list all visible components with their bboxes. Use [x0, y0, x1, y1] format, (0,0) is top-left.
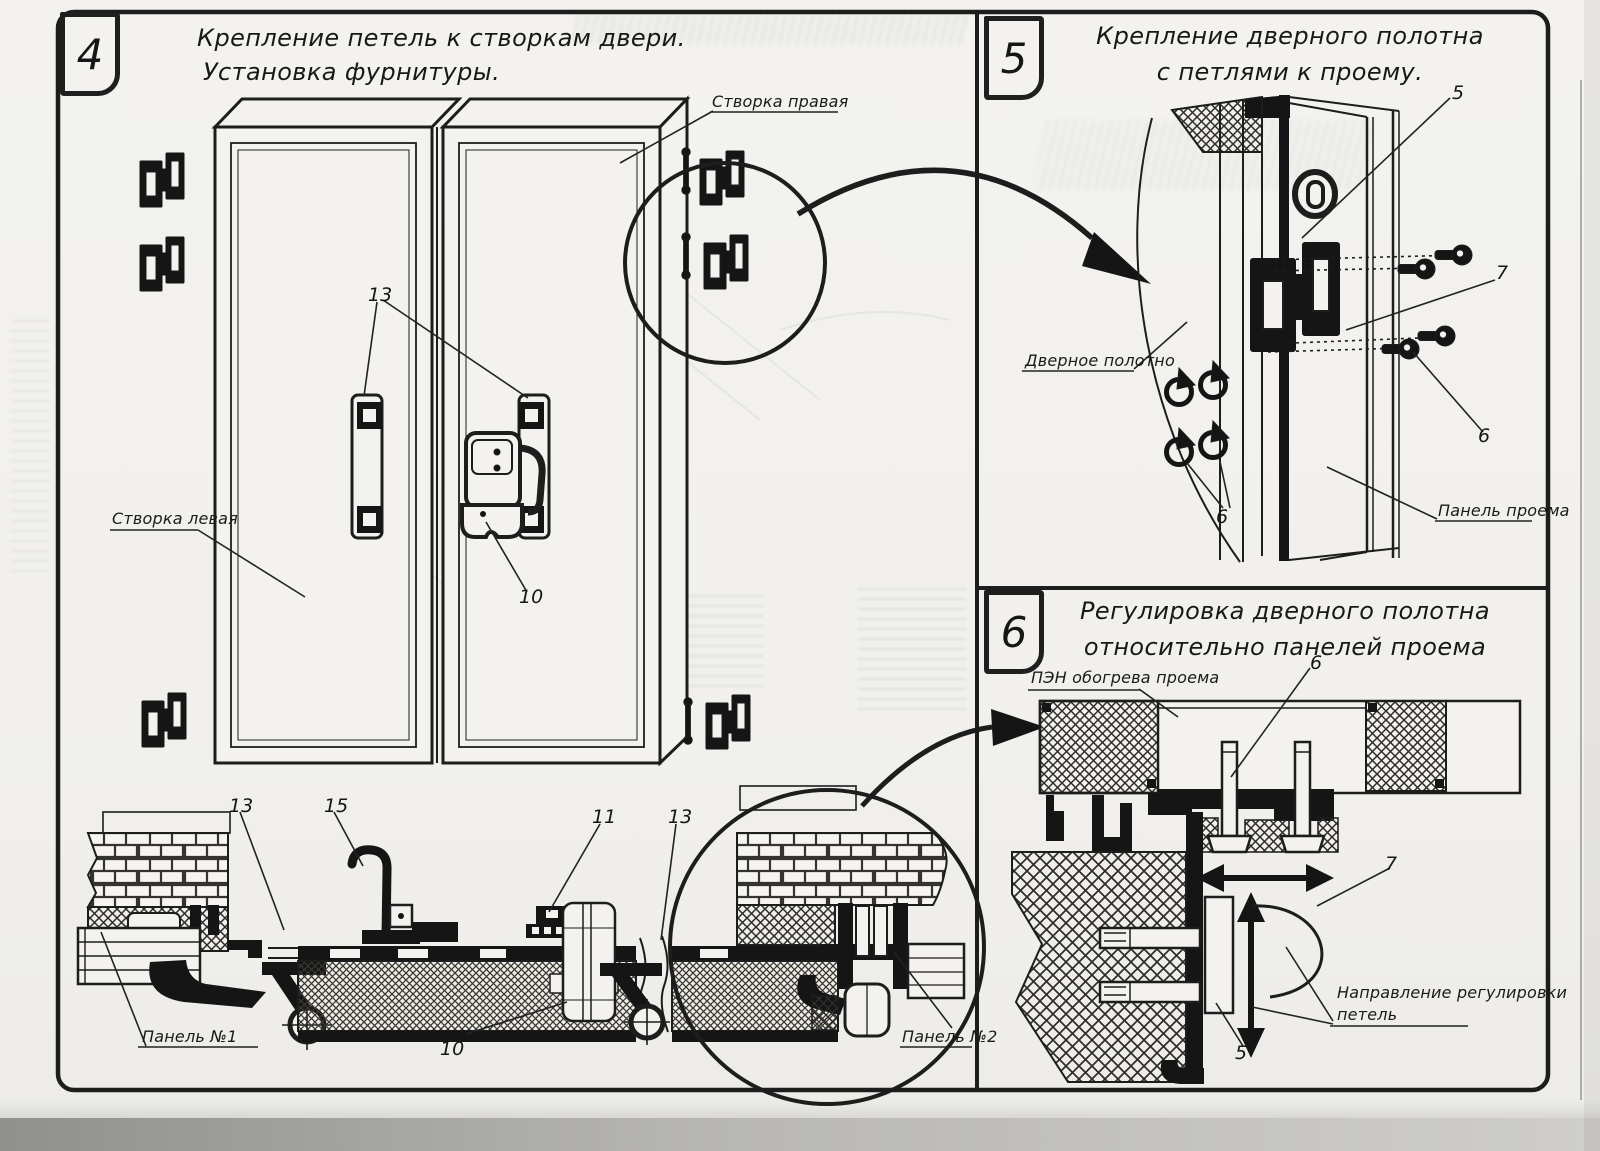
panel6-title-line1: Регулировка дверного полотна: [1070, 597, 1500, 625]
label-opening-panel: Панель проема: [1438, 501, 1570, 520]
label-heater: ПЭН обогрева проема: [1031, 668, 1219, 687]
callout-7-hinge-side: 7: [1385, 853, 1397, 875]
panel6-title-line2: относительно панелей проема: [1070, 633, 1500, 661]
callout-6-screws-left: 6: [1216, 506, 1228, 528]
callout-13-section-right: 13: [668, 806, 692, 828]
panel4-title-line1: Крепление петель к створкам двери.: [197, 24, 686, 52]
label-panel-1: Панель №1: [142, 1027, 238, 1046]
figure-number-5: 5: [984, 16, 1044, 100]
callout-6-screws-right: 6: [1478, 425, 1490, 447]
callout-6-bolt: 6: [1310, 652, 1322, 674]
scan-shadow: [0, 1100, 1600, 1118]
callout-7-gasket: 7: [1496, 262, 1508, 284]
technical-line-art: [0, 0, 1600, 1151]
figure-number-4: 4: [60, 12, 120, 96]
label-right-leaf: Створка правая: [712, 92, 849, 111]
panel5-title-line1: Крепление дверного полотна: [1080, 22, 1500, 50]
label-left-leaf: Створка левая: [112, 509, 238, 528]
panel5-title-line2: с петлями к проему.: [1080, 58, 1500, 86]
label-door-leaf: Дверное полотно: [1025, 351, 1175, 370]
callout-5-bottom: 5: [1235, 1042, 1247, 1064]
callout-5-hinge: 5: [1452, 82, 1464, 104]
detail-arrow-to-panel5: [798, 170, 1092, 238]
detail-arrow-to-panel6: [862, 727, 992, 806]
callout-13-handles: 13: [368, 284, 392, 306]
panel4-title-line2: Установка фурнитуры.: [203, 58, 500, 86]
panel5-hinge-mount-view: [1137, 95, 1472, 562]
label-direction-line2: петель: [1337, 1005, 1397, 1024]
hinge-large: [1253, 245, 1337, 349]
scanner-background-strip: [0, 1118, 1600, 1151]
figure-number-6: 6: [984, 590, 1044, 674]
callout-13-section-left: 13: [229, 795, 253, 817]
callout-10-section-latch: 10: [440, 1038, 464, 1060]
handle-hole: [1295, 172, 1335, 216]
callout-11-profile: 11: [592, 806, 616, 828]
callout-15-hook: 15: [324, 795, 348, 817]
page-edge-shade: [1584, 0, 1600, 1151]
scanned-assembly-drawing-page: 4 5 6 Крепление петель к створкам двери.…: [0, 0, 1600, 1151]
label-direction-line1: Направление регулировки: [1337, 983, 1567, 1002]
label-panel-2: Панель №2: [902, 1027, 998, 1046]
callout-10-latch: 10: [519, 586, 543, 608]
